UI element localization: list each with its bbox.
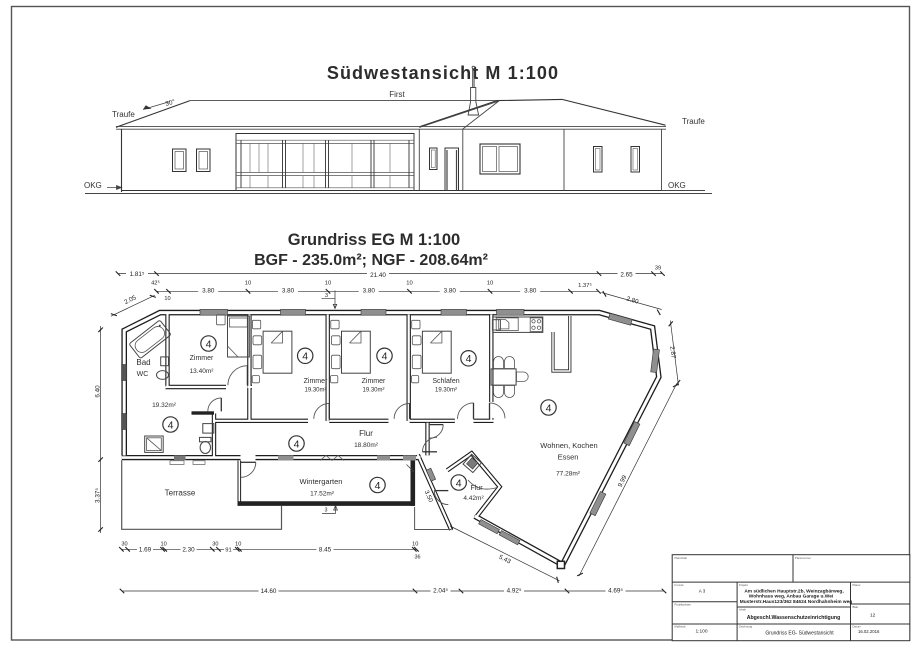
svg-text:BGF - 235.0m²; NGF - 208.64m²: BGF - 235.0m²; NGF - 208.64m² [254,252,488,269]
svg-text:Traufe: Traufe [682,117,705,126]
svg-text:Format: Format [675,583,684,587]
svg-text:Blatt: Blatt [853,605,859,609]
svg-text:77.28m²: 77.28m² [556,471,581,478]
svg-text:8.45: 8.45 [319,546,332,553]
svg-text:19.30m²: 19.30m² [304,388,326,394]
svg-text:4: 4 [456,477,462,489]
svg-text:Am südlichen Hauptstr.2b, Wein: Am südlichen Hauptstr.2b, Weinzagbärweg, [744,588,844,594]
svg-text:17.52m²: 17.52m² [310,491,335,498]
svg-text:Musterstr.Haus123/362 84624 No: Musterstr.Haus123/362 84624 Nordhahnheim… [740,599,853,605]
svg-text:3: 3 [325,293,328,299]
svg-text:Planer: Planer [853,583,861,587]
svg-text:Projekt: Projekt [739,583,748,587]
svg-text:3: 3 [325,508,328,514]
svg-text:WC: WC [137,371,149,378]
svg-text:Terrasse: Terrasse [165,489,196,498]
svg-text:Zeichnung: Zeichnung [739,625,753,629]
svg-text:4: 4 [382,351,388,363]
svg-text:4: 4 [546,402,552,414]
svg-text:36: 36 [415,555,421,561]
svg-text:Datum: Datum [853,625,862,629]
svg-text:OKG: OKG [84,181,102,190]
svg-text:21.40: 21.40 [370,272,386,279]
svg-text:3.37⁵: 3.37⁵ [95,488,102,503]
svg-text:4: 4 [206,338,212,350]
svg-text:Schlafen: Schlafen [432,378,459,385]
svg-text:Traufe: Traufe [112,110,135,119]
svg-text:Wohnhaus weg, Anbau Garage u.W: Wohnhaus weg, Anbau Garage u.Wei [749,594,833,600]
svg-text:2.04⁵: 2.04⁵ [433,588,448,595]
svg-text:30: 30 [212,541,218,547]
svg-text:10: 10 [235,541,241,547]
svg-text:Zimmer: Zimmer [190,355,214,362]
svg-text:1.81⁵: 1.81⁵ [130,271,145,278]
svg-text:Bad: Bad [136,358,150,367]
svg-text:Inhalt: Inhalt [739,608,746,612]
svg-text:4: 4 [302,351,308,363]
svg-text:Projektphase: Projektphase [675,603,692,607]
svg-text:30: 30 [121,541,127,547]
svg-text:3.80: 3.80 [524,288,537,295]
svg-text:10: 10 [487,280,493,286]
svg-text:4: 4 [375,480,381,492]
svg-text:2.30: 2.30 [182,546,195,553]
svg-text:Maßstab: Maßstab [675,625,686,629]
svg-text:1.37⁵: 1.37⁵ [578,282,592,289]
svg-text:Grundriss EG- Südwestansicht: Grundriss EG- Südwestansicht [765,631,834,637]
svg-text:Zimmer: Zimmer [362,378,386,385]
svg-text:Wintergarten: Wintergarten [300,477,343,486]
svg-text:14.60: 14.60 [261,588,277,595]
svg-text:3.80: 3.80 [444,288,457,295]
svg-text:Flur: Flur [359,429,373,438]
svg-text:10: 10 [160,541,166,547]
svg-text:3.80: 3.80 [363,288,376,295]
svg-text:4: 4 [466,353,472,365]
svg-text:Essen: Essen [558,453,579,462]
svg-text:19.30m²: 19.30m² [362,388,384,394]
svg-text:4.92⁵: 4.92⁵ [507,588,522,595]
svg-text:1.69: 1.69 [139,546,152,553]
svg-text:A 3: A 3 [699,588,706,593]
svg-text:19.30m²: 19.30m² [435,388,457,394]
svg-text:6.40: 6.40 [95,385,102,398]
svg-text:Grundriss EG M 1:100: Grundriss EG M 1:100 [288,231,460,249]
svg-text:Flur: Flur [470,485,483,492]
svg-text:First: First [389,90,405,99]
svg-text:Südwestansicht M 1:100: Südwestansicht M 1:100 [327,63,559,83]
svg-text:4: 4 [294,438,300,450]
svg-text:Plannummer: Plannummer [795,556,811,560]
svg-text:10: 10 [164,296,170,302]
svg-text:19.32m²: 19.32m² [152,402,177,409]
svg-text:4: 4 [168,419,174,431]
svg-text:91: 91 [225,547,231,553]
svg-text:1:100: 1:100 [695,629,707,635]
svg-text:4.42m²: 4.42m² [463,495,484,502]
svg-text:3.80: 3.80 [202,288,215,295]
svg-text:12: 12 [870,613,876,619]
svg-text:10: 10 [406,280,412,286]
svg-text:3.80: 3.80 [282,288,295,295]
svg-text:4.69⁵: 4.69⁵ [608,588,623,595]
svg-text:Wohnen, Kochen: Wohnen, Kochen [540,441,597,450]
svg-text:10: 10 [325,280,331,286]
svg-text:18.80m²: 18.80m² [354,442,379,449]
svg-text:OKG: OKG [668,181,686,190]
svg-text:16.02.2016: 16.02.2016 [858,629,880,634]
svg-text:10: 10 [412,541,418,547]
svg-text:42⁵: 42⁵ [151,279,160,286]
svg-text:Abgeschl.Wassenschutzeinrichti: Abgeschl.Wassenschutzeinrichtigung [747,615,840,621]
svg-text:10: 10 [245,280,251,286]
svg-text:39: 39 [655,265,661,271]
svg-text:13.40m²: 13.40m² [190,368,215,375]
svg-text:Planinhalt: Planinhalt [675,556,688,560]
svg-text:Zimmer: Zimmer [304,378,328,385]
svg-text:2.65: 2.65 [620,271,633,278]
